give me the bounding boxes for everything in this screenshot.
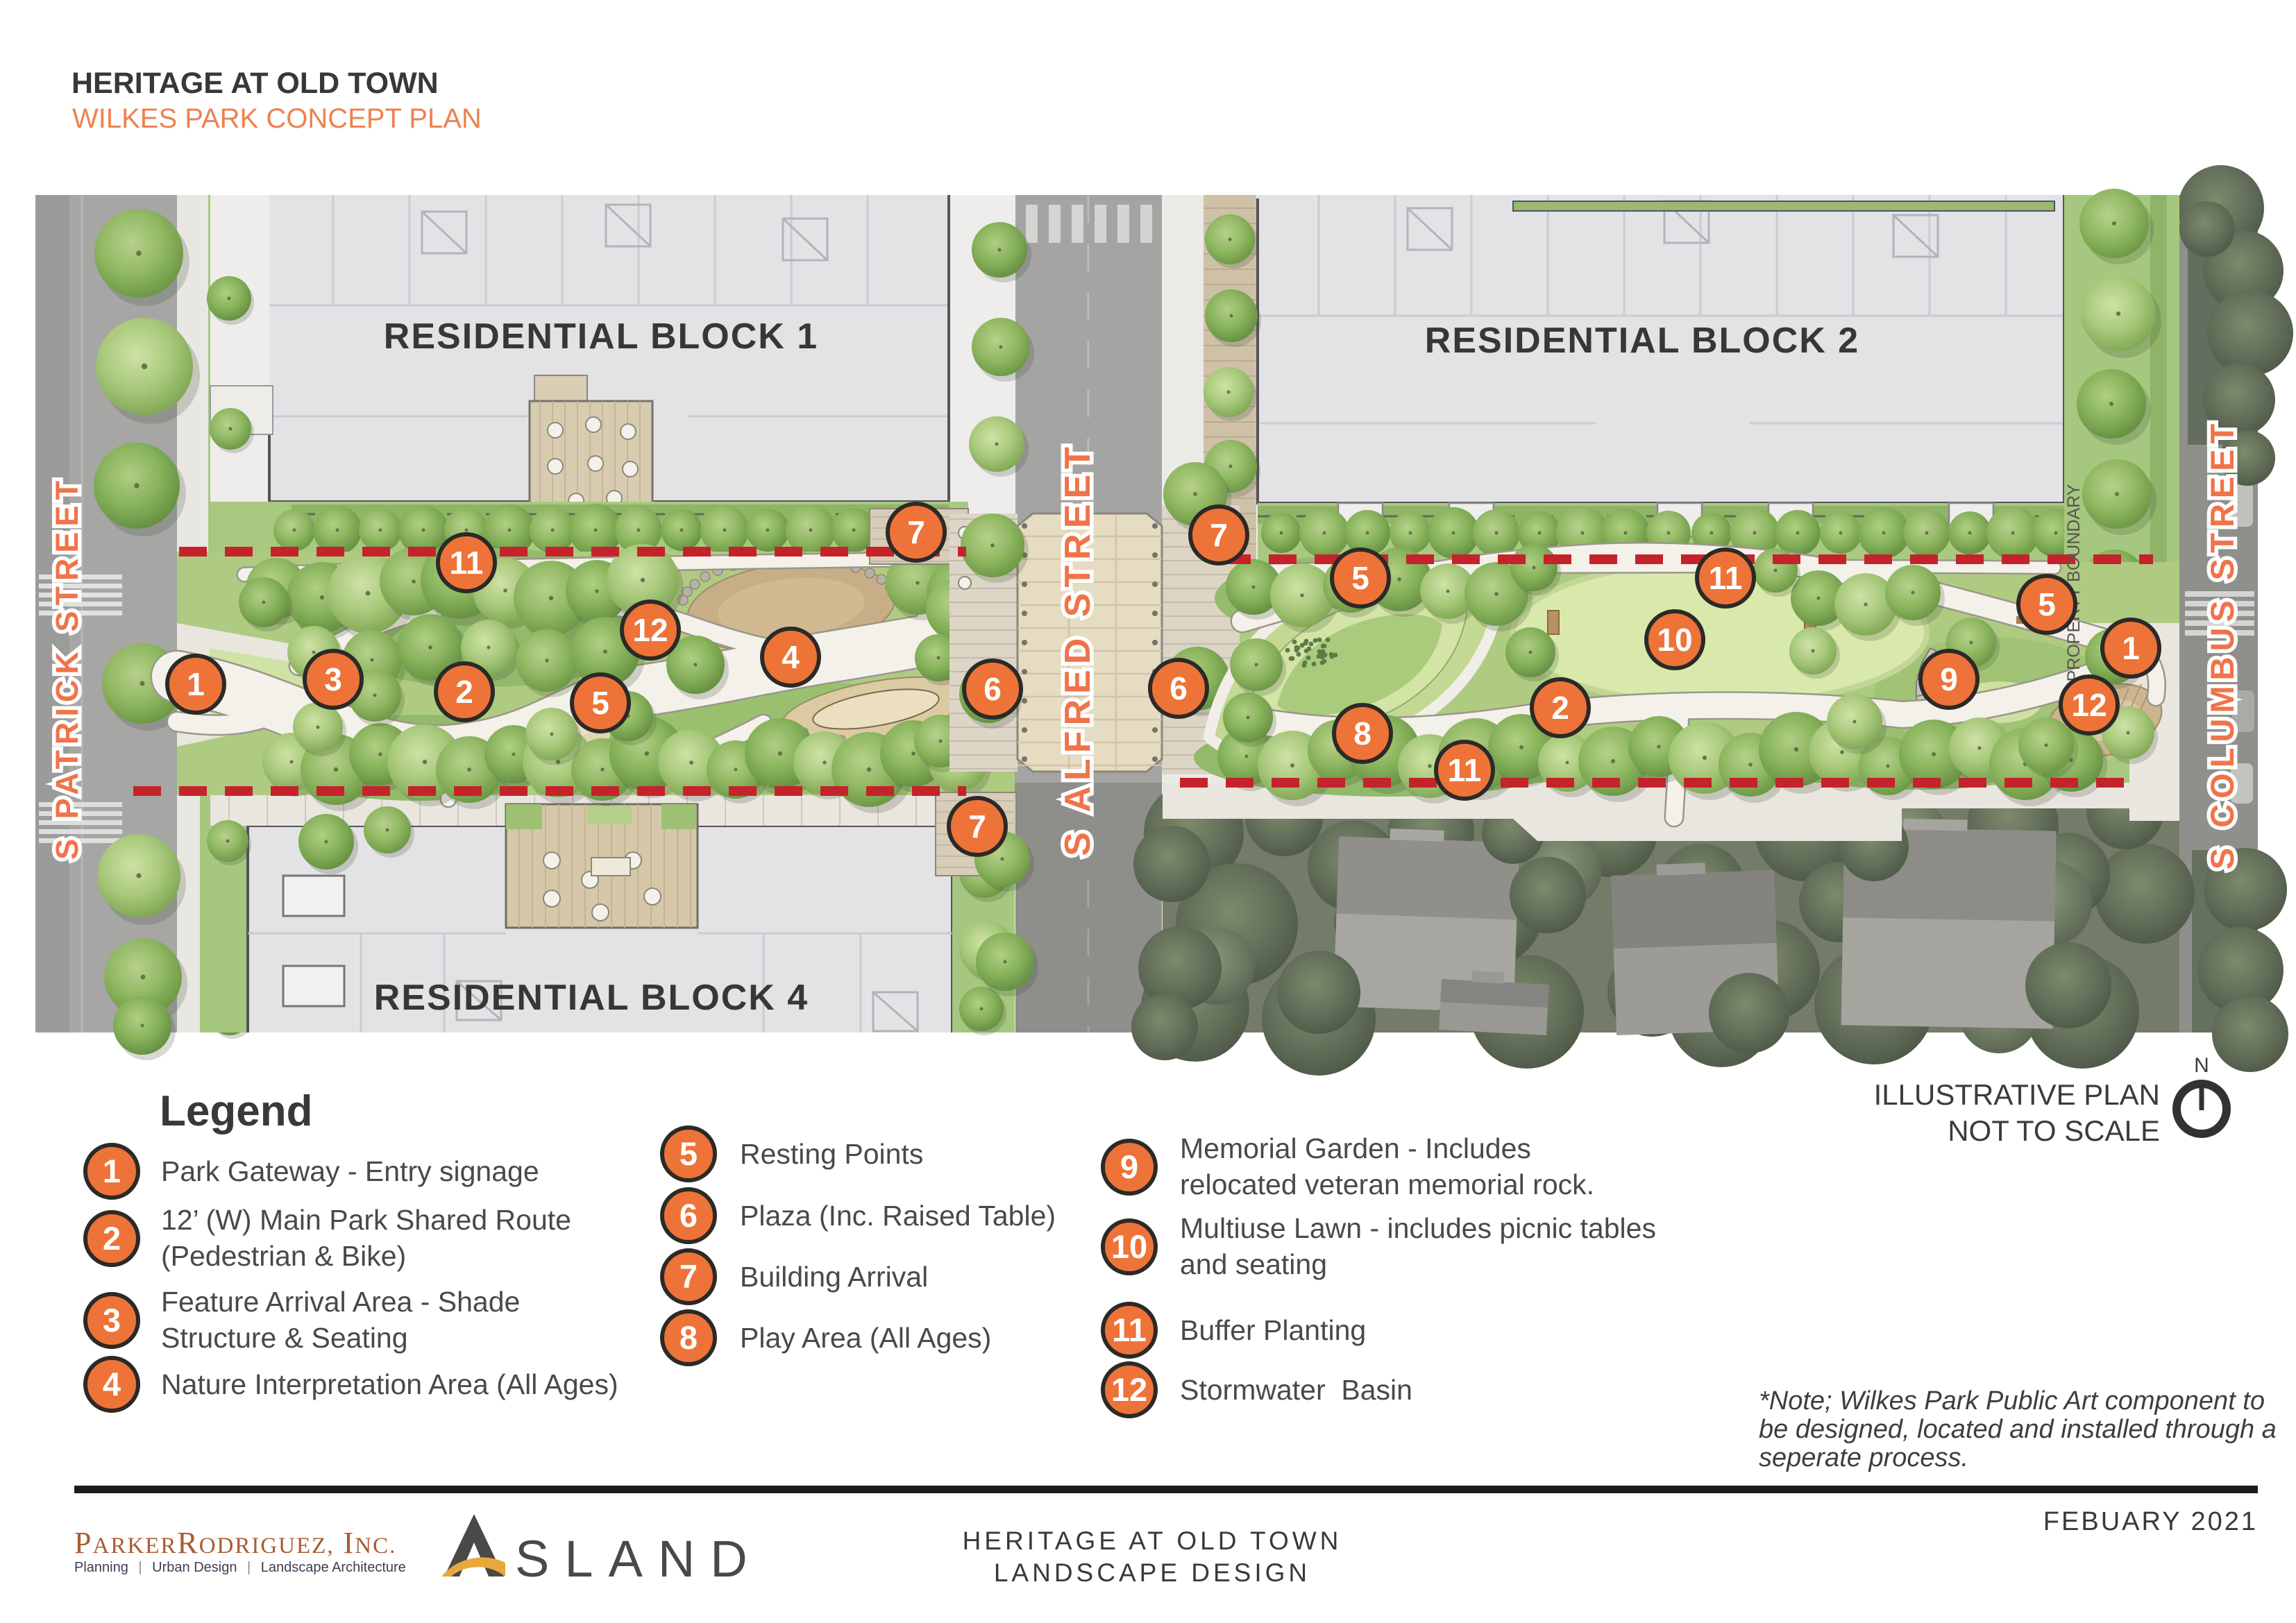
svg-text:7: 7 <box>968 808 986 844</box>
svg-text:S COLUMBUS STREET: S COLUMBUS STREET <box>2204 418 2240 869</box>
svg-text:6: 6 <box>679 1197 698 1234</box>
svg-text:Legend: Legend <box>160 1087 312 1135</box>
svg-text:11: 11 <box>1709 560 1743 596</box>
svg-text:1: 1 <box>2122 630 2140 666</box>
svg-text:7: 7 <box>1210 517 1228 553</box>
svg-text:7: 7 <box>907 514 925 550</box>
svg-text:5: 5 <box>679 1135 698 1172</box>
svg-text:Park Gateway - Entry signage: Park Gateway - Entry signage <box>161 1155 539 1187</box>
svg-text:seperate process.: seperate process. <box>1759 1443 1968 1472</box>
svg-text:10: 10 <box>1657 622 1692 658</box>
svg-text:10: 10 <box>1111 1228 1147 1265</box>
svg-text:Memorial Garden - Includes: Memorial Garden - Includes <box>1180 1132 1531 1164</box>
svg-text:11: 11 <box>450 545 484 581</box>
svg-text:1: 1 <box>103 1153 121 1189</box>
svg-text:RESIDENTIAL BLOCK 1: RESIDENTIAL BLOCK 1 <box>384 316 818 357</box>
svg-text:3: 3 <box>324 661 342 697</box>
svg-text:Buffer Planting: Buffer Planting <box>1180 1314 1366 1346</box>
svg-text:1: 1 <box>187 666 205 702</box>
svg-text:Stormwater Basin: Stormwater Basin <box>1180 1374 1412 1406</box>
svg-text:2: 2 <box>103 1220 121 1257</box>
svg-text:6: 6 <box>984 671 1002 707</box>
svg-text:Structure & Seating: Structure & Seating <box>161 1322 408 1354</box>
svg-text:N: N <box>2194 1054 2209 1077</box>
svg-text:12: 12 <box>632 612 668 648</box>
svg-text:11: 11 <box>1112 1311 1147 1348</box>
svg-text:Multiuse Lawn - includes picni: Multiuse Lawn - includes picnic tables <box>1180 1212 1656 1244</box>
svg-text:2: 2 <box>455 674 473 710</box>
svg-text:relocated veteran memorial roc: relocated veteran memorial rock. <box>1180 1169 1594 1200</box>
svg-text:and seating: and seating <box>1180 1248 1327 1280</box>
svg-text:12’ (W) Main Park Shared Route: 12’ (W) Main Park Shared Route <box>161 1204 571 1236</box>
svg-text:Resting Points: Resting Points <box>740 1138 923 1170</box>
svg-text:S ALFRED STREET: S ALFRED STREET <box>1058 441 1098 856</box>
svg-text:4: 4 <box>782 639 800 675</box>
svg-text:4: 4 <box>103 1366 121 1402</box>
svg-text:12: 12 <box>2071 687 2107 723</box>
svg-text:NOT TO SCALE: NOT TO SCALE <box>1948 1114 2160 1147</box>
svg-text:Building Arrival: Building Arrival <box>740 1261 928 1293</box>
svg-text:5: 5 <box>1351 560 1369 596</box>
svg-text:9: 9 <box>1940 661 1958 697</box>
svg-text:be designed, located and insta: be designed, located and installed throu… <box>1759 1415 2277 1444</box>
svg-text:SLAND: SLAND <box>515 1530 763 1588</box>
svg-text:ILLUSTRATIVE PLAN: ILLUSTRATIVE PLAN <box>1874 1078 2160 1111</box>
svg-text:(Pedestrian & Bike): (Pedestrian & Bike) <box>161 1240 406 1272</box>
svg-text:*Note; Wilkes Park Public Art: *Note; Wilkes Park Public Art component … <box>1759 1386 2265 1416</box>
svg-text:8: 8 <box>1353 715 1371 751</box>
svg-text:Play Area (All Ages): Play Area (All Ages) <box>740 1322 991 1354</box>
svg-text:7: 7 <box>679 1258 698 1295</box>
svg-text:3: 3 <box>103 1302 121 1339</box>
svg-text:5: 5 <box>2038 586 2056 622</box>
svg-text:8: 8 <box>679 1319 698 1356</box>
svg-text:S PATRICK STREET: S PATRICK STREET <box>49 475 85 860</box>
svg-text:11: 11 <box>1448 752 1482 788</box>
svg-text:2: 2 <box>1551 690 1569 726</box>
svg-text:RESIDENTIAL BLOCK 2: RESIDENTIAL BLOCK 2 <box>1425 321 1859 361</box>
svg-text:Feature Arrival Area - Shade: Feature Arrival Area - Shade <box>161 1286 520 1318</box>
svg-text:Plaza (Inc. Raised Table): Plaza (Inc. Raised Table) <box>740 1200 1056 1232</box>
svg-text:9: 9 <box>1120 1148 1138 1185</box>
svg-text:RESIDENTIAL BLOCK 4: RESIDENTIAL BLOCK 4 <box>374 978 809 1018</box>
svg-text:6: 6 <box>1170 670 1188 706</box>
svg-text:Nature Interpretation Area (Al: Nature Interpretation Area (All Ages) <box>161 1368 618 1400</box>
svg-text:5: 5 <box>591 685 609 721</box>
svg-text:12: 12 <box>1111 1371 1147 1408</box>
